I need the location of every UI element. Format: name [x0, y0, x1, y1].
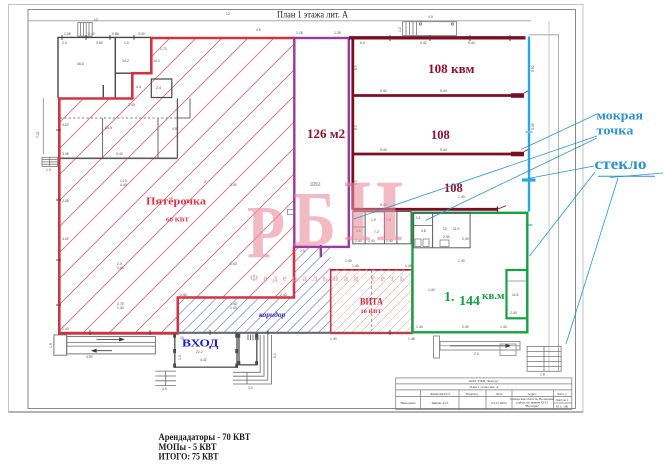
svg-text:1.28: 1.28	[296, 31, 303, 35]
svg-text:1.40: 1.40	[405, 264, 412, 268]
svg-text:ВИТА: ВИТА	[360, 297, 383, 307]
svg-text:14.1: 14.1	[153, 59, 160, 63]
svg-text:5.35: 5.35	[531, 123, 535, 130]
svg-text:1.8: 1.8	[540, 373, 545, 377]
svg-text:1.9: 1.9	[49, 343, 53, 348]
svg-text:4.57: 4.57	[172, 127, 179, 131]
svg-text:10 КВТ: 10 КВТ	[361, 309, 382, 315]
svg-text:6.0: 6.0	[354, 65, 358, 70]
svg-text:4.02: 4.02	[62, 237, 69, 241]
svg-text:36.6: 36.6	[77, 62, 84, 66]
svg-text:Лист 1: Лист 1	[557, 392, 567, 396]
svg-text:5.40: 5.40	[468, 41, 475, 45]
svg-text:4.42: 4.42	[200, 358, 207, 362]
svg-text:144: 144	[459, 294, 480, 309]
svg-text:12': 12'	[226, 12, 231, 16]
svg-text:"Волгарь": "Волгарь"	[525, 404, 540, 408]
svg-text:Фамилия И.О: Фамилия И.О	[430, 392, 450, 396]
svg-text:Адрес: Адрес	[528, 392, 537, 396]
svg-text:5.40: 5.40	[380, 148, 387, 152]
svg-text:5.0: 5.0	[273, 353, 277, 358]
svg-text:1.40: 1.40	[416, 325, 423, 329]
svg-text:1.: 1.	[444, 290, 455, 305]
svg-text:5.40: 5.40	[440, 148, 447, 152]
svg-text:4.50: 4.50	[86, 355, 93, 359]
svg-text:ООО "ПКЦ "Контур": ООО "ПКЦ "Контур"	[469, 379, 500, 383]
svg-text:3.08: 3.08	[62, 152, 69, 156]
svg-text:3.8: 3.8	[421, 229, 426, 233]
svg-text:84.9: 84.9	[105, 126, 112, 130]
svg-text:12': 12'	[94, 18, 99, 22]
svg-text:1.40: 1.40	[458, 259, 465, 263]
svg-text:точка: точка	[597, 123, 635, 138]
svg-text:кв.м: кв.м	[482, 290, 505, 302]
svg-text:Федеральная сеть: Федеральная сеть	[250, 274, 408, 284]
svg-text:3.0: 3.0	[162, 387, 167, 391]
svg-text:5.92: 5.92	[531, 65, 535, 72]
svg-text:1.40: 1.40	[117, 266, 124, 270]
svg-text:2.40: 2.40	[443, 235, 450, 239]
svg-text:60 КВТ: 60 КВТ	[166, 217, 190, 224]
svg-text:1.70: 1.70	[160, 47, 167, 51]
svg-text:2': 2'	[204, 180, 207, 184]
svg-text:1.40: 1.40	[458, 195, 465, 199]
svg-text:1.0: 1.0	[46, 168, 51, 172]
svg-text:Дата: Дата	[496, 392, 503, 396]
svg-text:1.40: 1.40	[352, 264, 359, 268]
svg-text:22.2: 22.2	[196, 350, 203, 354]
svg-text:3.40: 3.40	[138, 32, 145, 36]
svg-text:2.0: 2.0	[62, 41, 67, 45]
svg-text:1.40: 1.40	[330, 337, 337, 341]
svg-text:1.40: 1.40	[117, 306, 124, 310]
svg-text:1.40: 1.40	[230, 262, 237, 266]
svg-text:5.40: 5.40	[440, 89, 447, 93]
svg-text:5.40: 5.40	[420, 41, 427, 45]
svg-text:6.0: 6.0	[354, 125, 358, 130]
svg-text:1.40: 1.40	[62, 327, 69, 331]
svg-text:1.40: 1.40	[428, 288, 435, 292]
svg-text:мокрая: мокрая	[597, 108, 644, 123]
svg-text:14.2: 14.2	[122, 59, 129, 63]
svg-text:1.48: 1.48	[408, 337, 415, 341]
svg-text:11.9: 11.9	[453, 227, 459, 231]
svg-text:2.4: 2.4	[156, 86, 161, 90]
svg-text:1.5: 1.5	[178, 355, 182, 360]
svg-text:4.40: 4.40	[120, 183, 127, 187]
svg-text:5.40: 5.40	[380, 89, 387, 93]
svg-text:0.86: 0.86	[112, 32, 119, 36]
svg-text:0.60: 0.60	[96, 41, 103, 45]
svg-text:1.0: 1.0	[124, 41, 129, 45]
svg-text:ВХОД: ВХОД	[182, 339, 219, 350]
svg-text:126 м2: 126 м2	[307, 126, 345, 141]
svg-text:10: 10	[180, 336, 184, 340]
svg-text:1.28: 1.28	[334, 31, 341, 35]
svg-text:2.40: 2.40	[462, 237, 469, 241]
svg-text:6.0: 6.0	[360, 41, 365, 45]
svg-text:108 квм: 108 квм	[428, 62, 475, 76]
svg-text:4.9: 4.9	[256, 28, 261, 32]
svg-text:1.40: 1.40	[500, 325, 507, 329]
svg-text:План 1 этажа лит. А: План 1 этажа лит. А	[277, 11, 348, 21]
svg-text:Б: Б	[293, 176, 336, 263]
svg-text:12: 12	[443, 227, 447, 231]
svg-text:1.28: 1.28	[64, 32, 71, 36]
svg-text:2.40: 2.40	[230, 183, 237, 187]
svg-text:4.02: 4.02	[62, 123, 69, 127]
svg-text:04.12.2004: 04.12.2004	[491, 401, 507, 405]
svg-text:Звягин А.П.: Звягин А.П.	[431, 401, 448, 405]
svg-text:стекло: стекло	[595, 156, 647, 173]
svg-text:3.0: 3.0	[248, 386, 253, 390]
svg-text:коридор: коридор	[259, 310, 286, 319]
svg-text:План 1 этажа лит. А: План 1 этажа лит. А	[470, 385, 499, 389]
svg-text:2.40: 2.40	[128, 103, 135, 107]
svg-text:2.40: 2.40	[116, 152, 123, 156]
svg-text:2.6: 2.6	[416, 216, 421, 220]
svg-text:Арендадаторы - 70 КВТ: Арендадаторы - 70 КВТ	[159, 433, 252, 443]
svg-text:2.40: 2.40	[280, 293, 287, 297]
svg-text:МОПы - 5 КВТ: МОПы - 5 КВТ	[159, 443, 218, 453]
svg-text:2.40: 2.40	[510, 311, 517, 315]
svg-text:4.9: 4.9	[428, 15, 433, 19]
svg-text:Подпись: Подпись	[466, 392, 479, 396]
svg-text:4.4: 4.4	[136, 85, 141, 89]
svg-text:2.40: 2.40	[462, 325, 469, 329]
svg-text:108: 108	[431, 128, 450, 142]
svg-text:ИТОГО: 75 КВТ: ИТОГО: 75 КВТ	[159, 453, 220, 463]
svg-text:Пятёрочка: Пятёрочка	[146, 196, 207, 208]
svg-text:11.8: 11.8	[512, 293, 518, 297]
svg-text:Выполнил: Выполнил	[400, 401, 415, 405]
svg-text:7.31: 7.31	[36, 131, 40, 138]
svg-text:2.08: 2.08	[62, 199, 69, 203]
svg-text:2.0: 2.0	[474, 352, 479, 356]
svg-text:1.40: 1.40	[180, 293, 187, 297]
svg-text:Листов 1: Листов 1	[556, 398, 569, 402]
svg-text:М 1: 100: М 1: 100	[556, 405, 569, 409]
svg-text:1.2: 1.2	[398, 27, 402, 32]
svg-text:Р: Р	[247, 192, 285, 275]
